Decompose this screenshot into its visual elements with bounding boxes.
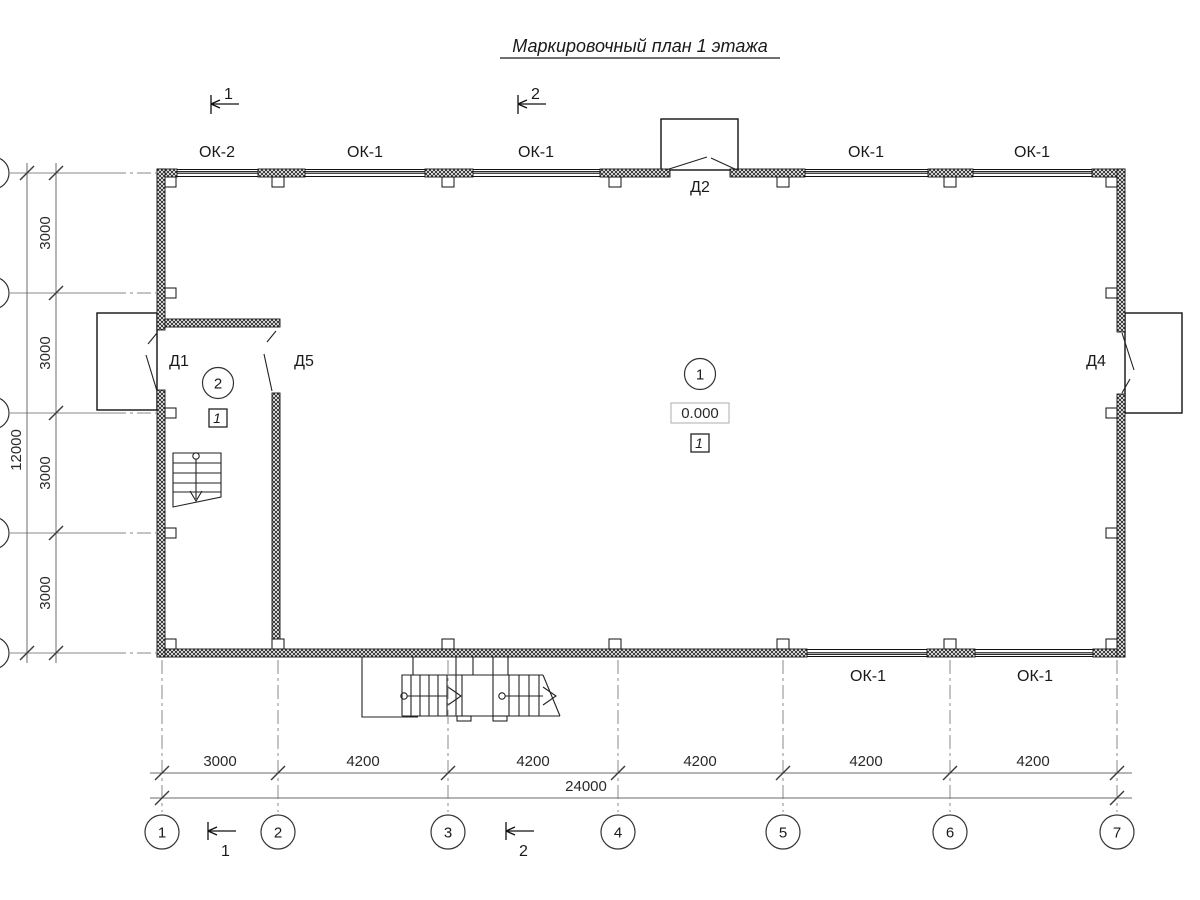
window-ok2-top [177,170,258,177]
door-label-d4: Д4 [1086,353,1106,370]
window-label-top-3: ОК-1 [518,144,554,161]
left-axis-bubbles [0,157,9,669]
dim-left-segment-3: 3000 [37,456,54,489]
window-label-top-1: ОК-2 [199,144,235,161]
top-wall [157,169,1125,177]
window-ok1-top-4 [973,170,1092,177]
dim-bottom-total: 24000 [565,778,607,795]
window-ok1-top-3 [805,170,928,177]
dim-bottom-segment-1: 3000 [203,753,236,770]
svg-text:2: 2 [274,825,282,842]
section-mark-label: 1 [224,86,233,103]
floor-type-tag: 1 [695,435,703,451]
interior-stair [173,453,221,507]
door-label-d2: Д2 [690,179,710,196]
right-wall [1117,169,1125,657]
axis-bubble-2: 2 [261,815,295,849]
drawing-title: Маркировочный план 1 этажа [500,36,780,58]
section-mark-bottom-1: 1 [208,822,236,860]
axis-bubble-1: 1 [145,815,179,849]
axis-bubble-6: 6 [933,815,967,849]
door-label-d5: Д5 [294,353,314,370]
dim-left-total: 12000 [8,429,25,471]
room-number: 2 [214,376,222,393]
window-label-top-5: ОК-1 [1014,144,1050,161]
svg-text:5: 5 [779,825,787,842]
section-mark-top-2: 2 [518,86,546,114]
window-label-bottom-2: ОК-1 [1017,668,1053,685]
dim-bottom-segment-2: 4200 [346,753,379,770]
window-ok1-top-1 [305,170,425,177]
floor-plan-canvas: Маркировочный план 1 этажа 1 2 [0,0,1200,900]
dim-bottom-segment-3: 4200 [516,753,549,770]
section-mark-top-1: 1 [211,86,239,114]
axis-bubble-7: 7 [1100,815,1134,849]
page-title: Маркировочный план 1 этажа [512,36,767,56]
svg-text:1: 1 [158,825,166,842]
bottom-wall [157,649,1125,657]
room-tag-stair: 2 1 [203,368,234,428]
window-ok1-bottom-2 [975,650,1093,657]
dim-left-segment-1: 3000 [37,216,54,249]
door-label-d1: Д1 [169,353,189,370]
floor-plan-drawing: Маркировочный план 1 этажа 1 2 [0,0,1200,900]
window-ok1-bottom-1 [807,650,927,657]
svg-text:4: 4 [614,825,622,842]
section-mark-label: 2 [519,843,528,860]
door-d5-leaf [264,331,276,391]
window-ok1-top-2 [473,170,600,177]
svg-text:3: 3 [444,825,452,842]
right-porch [1125,313,1182,413]
window-label-top-2: ОК-1 [347,144,383,161]
dim-left-segment-4: 3000 [37,576,54,609]
dim-ticks-bottom [155,766,1124,805]
axis-bubble-4: 4 [601,815,635,849]
section-mark-label: 2 [531,86,540,103]
elevation-mark: 0.000 [681,405,719,422]
dim-bottom-segment-5: 4200 [849,753,882,770]
room-number: 1 [696,367,704,384]
section-mark-label: 1 [221,843,230,860]
window-label-bottom-1: ОК-1 [850,668,886,685]
axis-bubble-5: 5 [766,815,800,849]
exterior-stair [362,657,560,721]
svg-text:6: 6 [946,825,954,842]
dim-left-segment-2: 3000 [37,336,54,369]
section-mark-bottom-2: 2 [506,822,534,860]
bottom-dimensions: 3000 4200 4200 4200 4200 4200 24000 1 2 … [145,660,1134,849]
dim-bottom-segment-6: 4200 [1016,753,1049,770]
top-porch [661,119,738,170]
pilasters [165,177,1117,649]
window-label-top-4: ОК-1 [848,144,884,161]
left-dimensions: 3000 3000 3000 3000 12000 [0,157,156,669]
room-tag-main: 1 0.000 1 [671,359,729,453]
left-wall [157,169,165,657]
floor-type-tag: 1 [213,410,221,426]
svg-text:7: 7 [1113,825,1121,842]
axis-bubble-3: 3 [431,815,465,849]
dim-bottom-segment-4: 4200 [683,753,716,770]
